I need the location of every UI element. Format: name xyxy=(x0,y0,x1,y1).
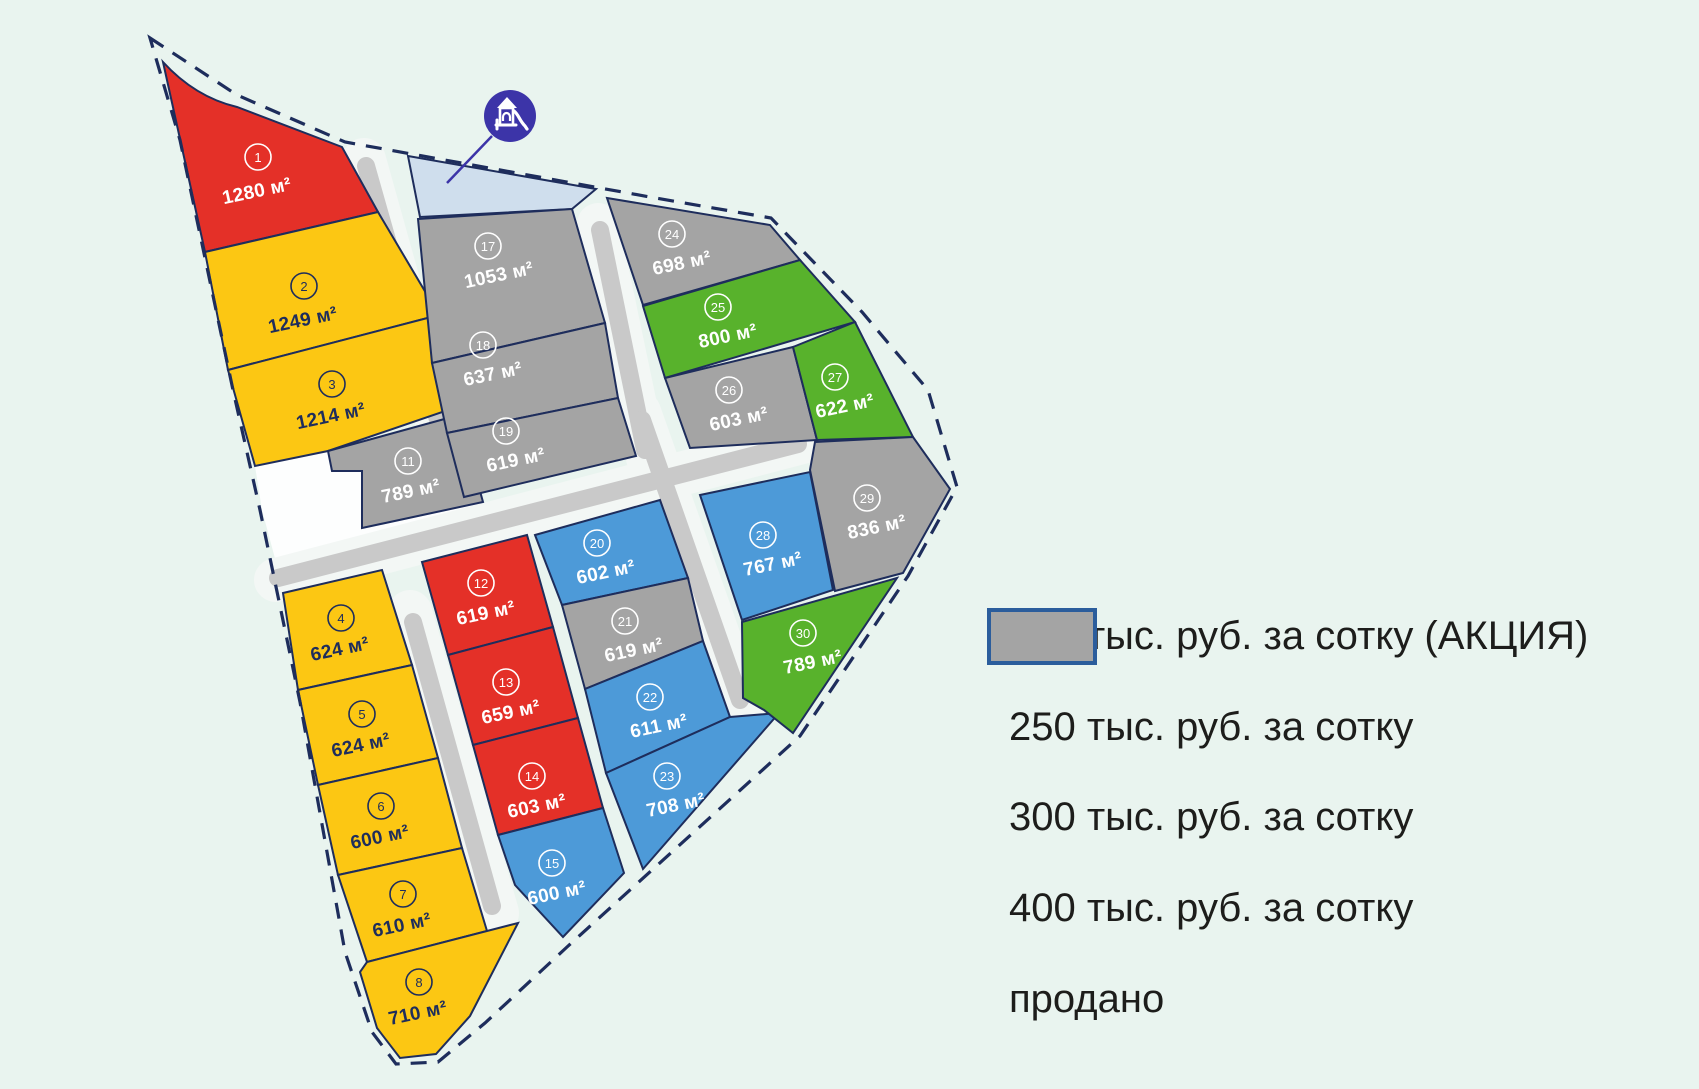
plot-5-number: 5 xyxy=(358,707,365,722)
plot-25-number: 25 xyxy=(711,300,725,315)
plot-22-number: 22 xyxy=(643,690,657,705)
plot-7-number: 7 xyxy=(399,887,406,902)
plot-23-number: 23 xyxy=(660,769,674,784)
plot-18-number: 18 xyxy=(476,338,490,353)
playground-area xyxy=(408,156,596,217)
plot-8-number: 8 xyxy=(415,975,422,990)
playground-icon[interactable] xyxy=(484,90,536,142)
plot-1-number: 1 xyxy=(254,150,261,165)
plot-29: 29 836 м² xyxy=(810,437,950,591)
plot-4-number: 4 xyxy=(337,611,344,626)
legend-row-250: 250 тыс. руб. за сотку xyxy=(987,699,1547,756)
plot-3-number: 3 xyxy=(328,377,335,392)
land-plot-map: 1 1280 м² 2 1249 м² 3 1214 м² 4 624 м² 5… xyxy=(0,0,1699,1089)
plot-26-number: 26 xyxy=(722,383,736,398)
legend-row-300: 300 тыс. руб. за сотку xyxy=(987,789,1547,846)
legend-label-sold: продано xyxy=(1009,977,1164,1022)
plot-13-number: 13 xyxy=(499,675,513,690)
plot-27-number: 27 xyxy=(828,370,842,385)
legend-row-sold: продано xyxy=(987,971,1547,1028)
plot-14-number: 14 xyxy=(525,769,539,784)
legend-label-250: 250 тыс. руб. за сотку xyxy=(1009,705,1413,750)
plot-20-number: 20 xyxy=(590,536,604,551)
plot-28-number: 28 xyxy=(756,528,770,543)
legend-label-400: 400 тыс. руб. за сотку xyxy=(1009,886,1413,931)
plot-2-number: 2 xyxy=(300,279,307,294)
legend-swatch-gray xyxy=(987,608,1097,665)
plot-11-number: 11 xyxy=(401,454,415,469)
plot-12-number: 12 xyxy=(474,576,488,591)
playground-marker xyxy=(447,90,536,183)
plot-30-number: 30 xyxy=(796,626,810,641)
plot-29-shape[interactable] xyxy=(810,437,950,591)
legend-label-300: 300 тыс. руб. за сотку xyxy=(1009,795,1413,840)
price-legend: 200 тыс. руб. за сотку (АКЦИЯ) 250 тыс. … xyxy=(987,608,1547,1062)
plot-15-number: 15 xyxy=(545,856,559,871)
legend-row-400: 400 тыс. руб. за сотку xyxy=(987,880,1547,937)
plot-29-number: 29 xyxy=(860,491,874,506)
plot-19-number: 19 xyxy=(499,424,513,439)
plot-21-number: 21 xyxy=(618,614,632,629)
plot-6-number: 6 xyxy=(377,799,384,814)
plot-24-number: 24 xyxy=(665,227,679,242)
plot-17-number: 17 xyxy=(481,239,495,254)
